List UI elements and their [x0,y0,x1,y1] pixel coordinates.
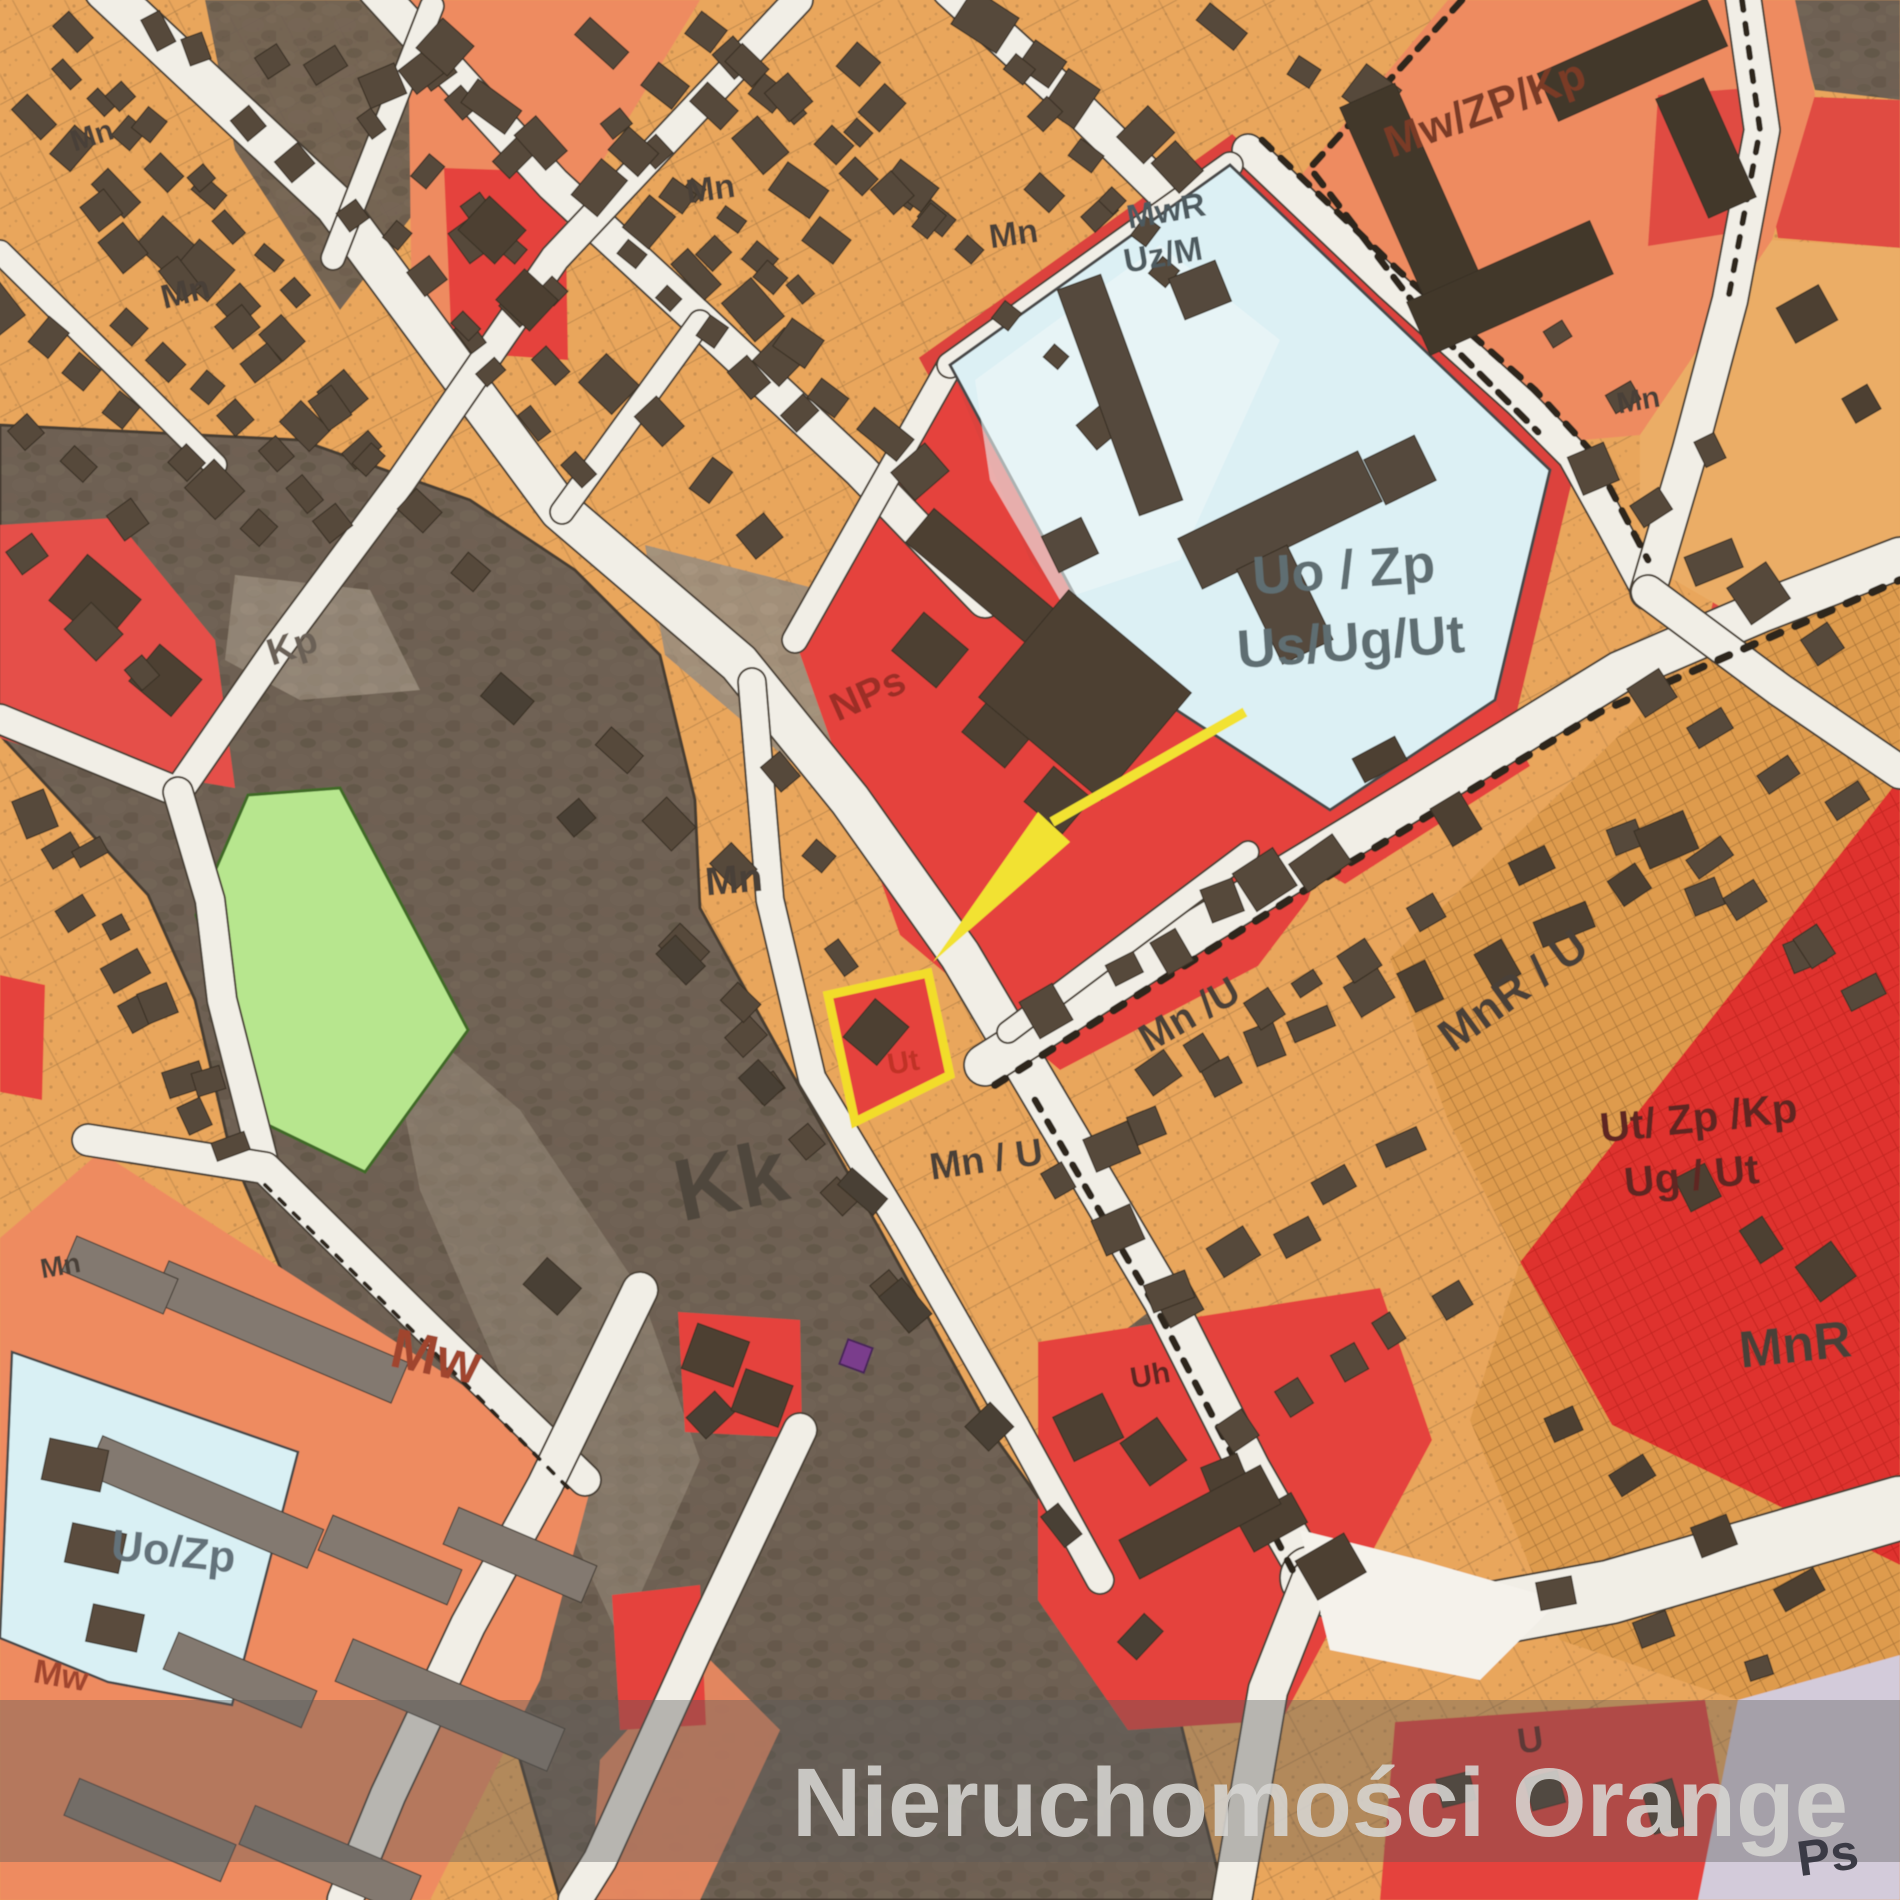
svg-text:Uh: Uh [1128,1356,1173,1395]
svg-text:Ut: Ut [885,1044,922,1082]
svg-text:Nieruchomości Orange: Nieruchomości Orange [792,1748,1848,1857]
svg-text:Uo / Zp: Uo / Zp [1250,534,1437,607]
svg-text:MnR: MnR [1736,1310,1854,1379]
svg-text:Mn: Mn [684,167,738,211]
svg-text:Ps: Ps [1793,1823,1861,1887]
svg-text:Mn: Mn [703,856,764,905]
svg-text:Mn: Mn [987,212,1041,256]
